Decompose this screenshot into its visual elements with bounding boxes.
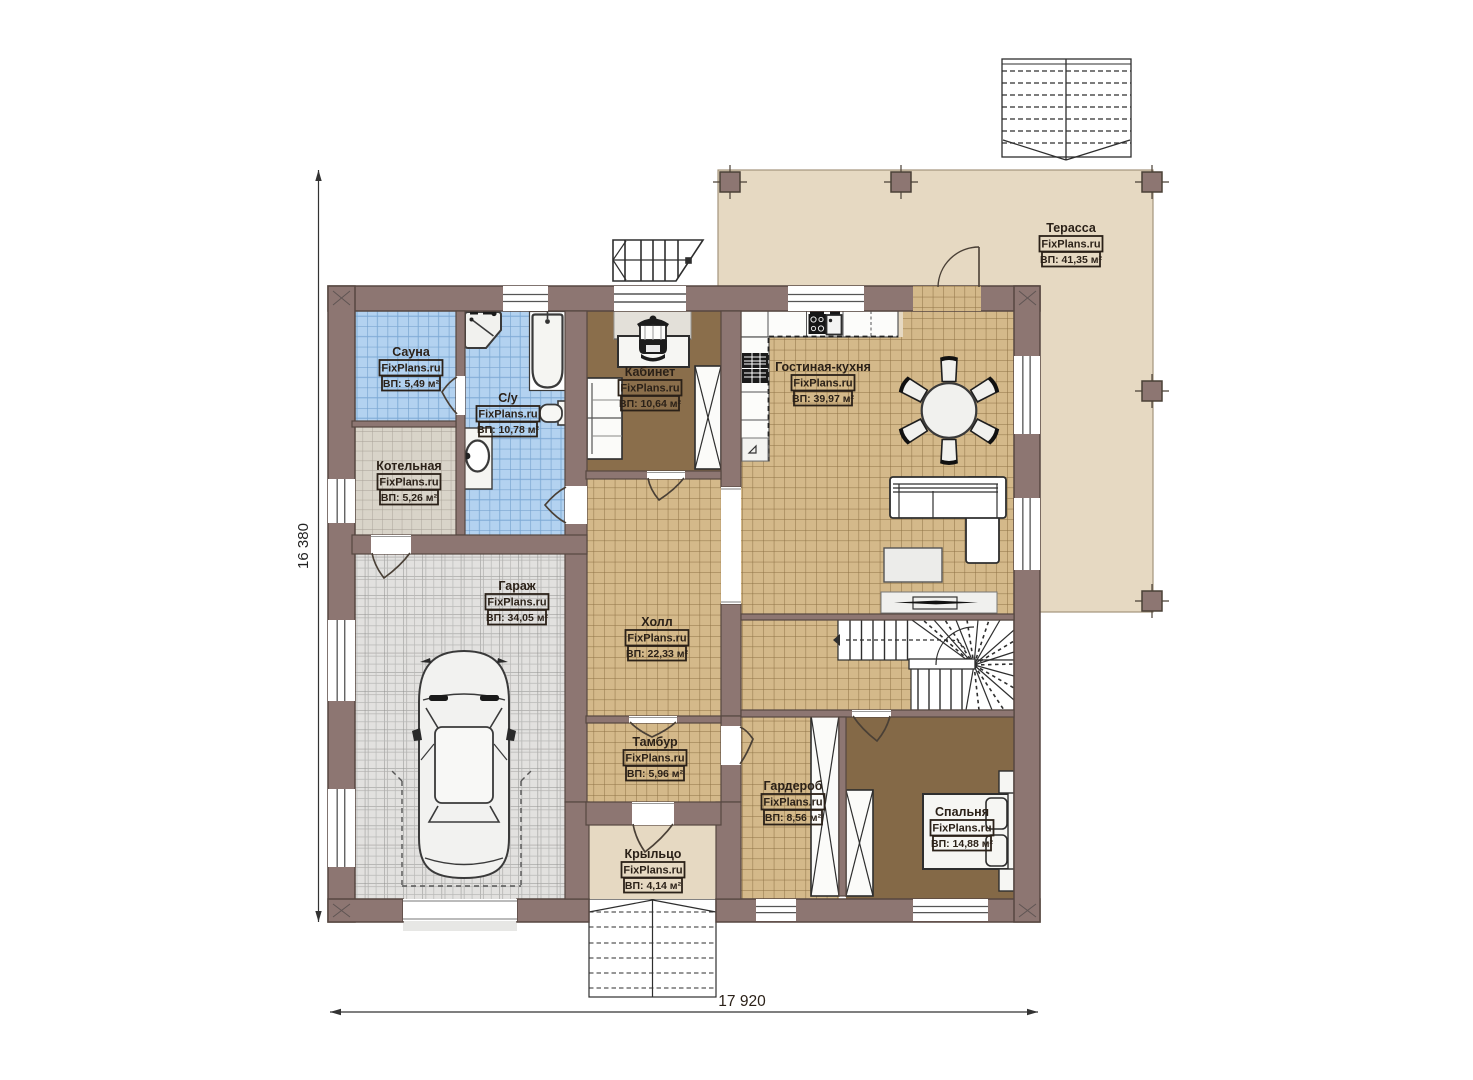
svg-text:ВП: 10,78 м²: ВП: 10,78 м² [477, 424, 540, 436]
svg-text:ВП: 22,33 м²: ВП: 22,33 м² [626, 648, 689, 660]
svg-text:Сауна: Сауна [392, 345, 431, 359]
svg-text:Терасса: Терасса [1046, 221, 1097, 235]
svg-text:ВП: 34,05 м²: ВП: 34,05 м² [486, 612, 549, 624]
svg-text:Гараж: Гараж [498, 579, 535, 593]
svg-text:Холл: Холл [641, 615, 672, 629]
svg-text:Гостиная-кухня: Гостиная-кухня [775, 360, 871, 374]
svg-text:Спальня: Спальня [935, 805, 989, 819]
svg-text:FixPlans.ru: FixPlans.ru [620, 383, 679, 395]
svg-text:ВП: 4,14 м²: ВП: 4,14 м² [625, 880, 682, 892]
svg-text:FixPlans.ru: FixPlans.ru [478, 409, 537, 421]
svg-text:ВП: 5,96 м²: ВП: 5,96 м² [627, 768, 684, 780]
svg-text:FixPlans.ru: FixPlans.ru [381, 363, 440, 375]
svg-text:ВП: 5,26 м²: ВП: 5,26 м² [381, 492, 438, 504]
svg-text:FixPlans.ru: FixPlans.ru [379, 477, 438, 489]
svg-text:Кабинет: Кабинет [625, 365, 676, 379]
svg-text:Котельная: Котельная [376, 459, 441, 473]
svg-text:Тамбур: Тамбур [632, 735, 678, 749]
svg-text:FixPlans.ru: FixPlans.ru [932, 823, 991, 835]
svg-text:ВП: 8,56 м²: ВП: 8,56 м² [765, 812, 822, 824]
svg-text:ВП: 5,49 м²: ВП: 5,49 м² [383, 378, 440, 390]
svg-text:Гардероб: Гардероб [763, 779, 822, 793]
svg-text:FixPlans.ru: FixPlans.ru [625, 753, 684, 765]
svg-text:Крыльцо: Крыльцо [625, 847, 682, 861]
svg-text:FixPlans.ru: FixPlans.ru [1041, 239, 1100, 251]
svg-text:ВП: 39,97 м²: ВП: 39,97 м² [792, 393, 855, 405]
svg-text:ВП: 14,88 м²: ВП: 14,88 м² [931, 838, 994, 850]
svg-text:ВП: 41,35 м²: ВП: 41,35 м² [1040, 254, 1103, 266]
svg-text:FixPlans.ru: FixPlans.ru [793, 378, 852, 390]
svg-text:16 380: 16 380 [295, 523, 312, 569]
svg-text:17 920: 17 920 [718, 993, 766, 1010]
svg-text:FixPlans.ru: FixPlans.ru [627, 633, 686, 645]
svg-text:ВП: 10,64 м²: ВП: 10,64 м² [619, 398, 682, 410]
svg-text:FixPlans.ru: FixPlans.ru [763, 797, 822, 809]
svg-text:FixPlans.ru: FixPlans.ru [623, 865, 682, 877]
svg-text:FixPlans.ru: FixPlans.ru [487, 597, 546, 609]
svg-text:С/у: С/у [498, 391, 518, 405]
